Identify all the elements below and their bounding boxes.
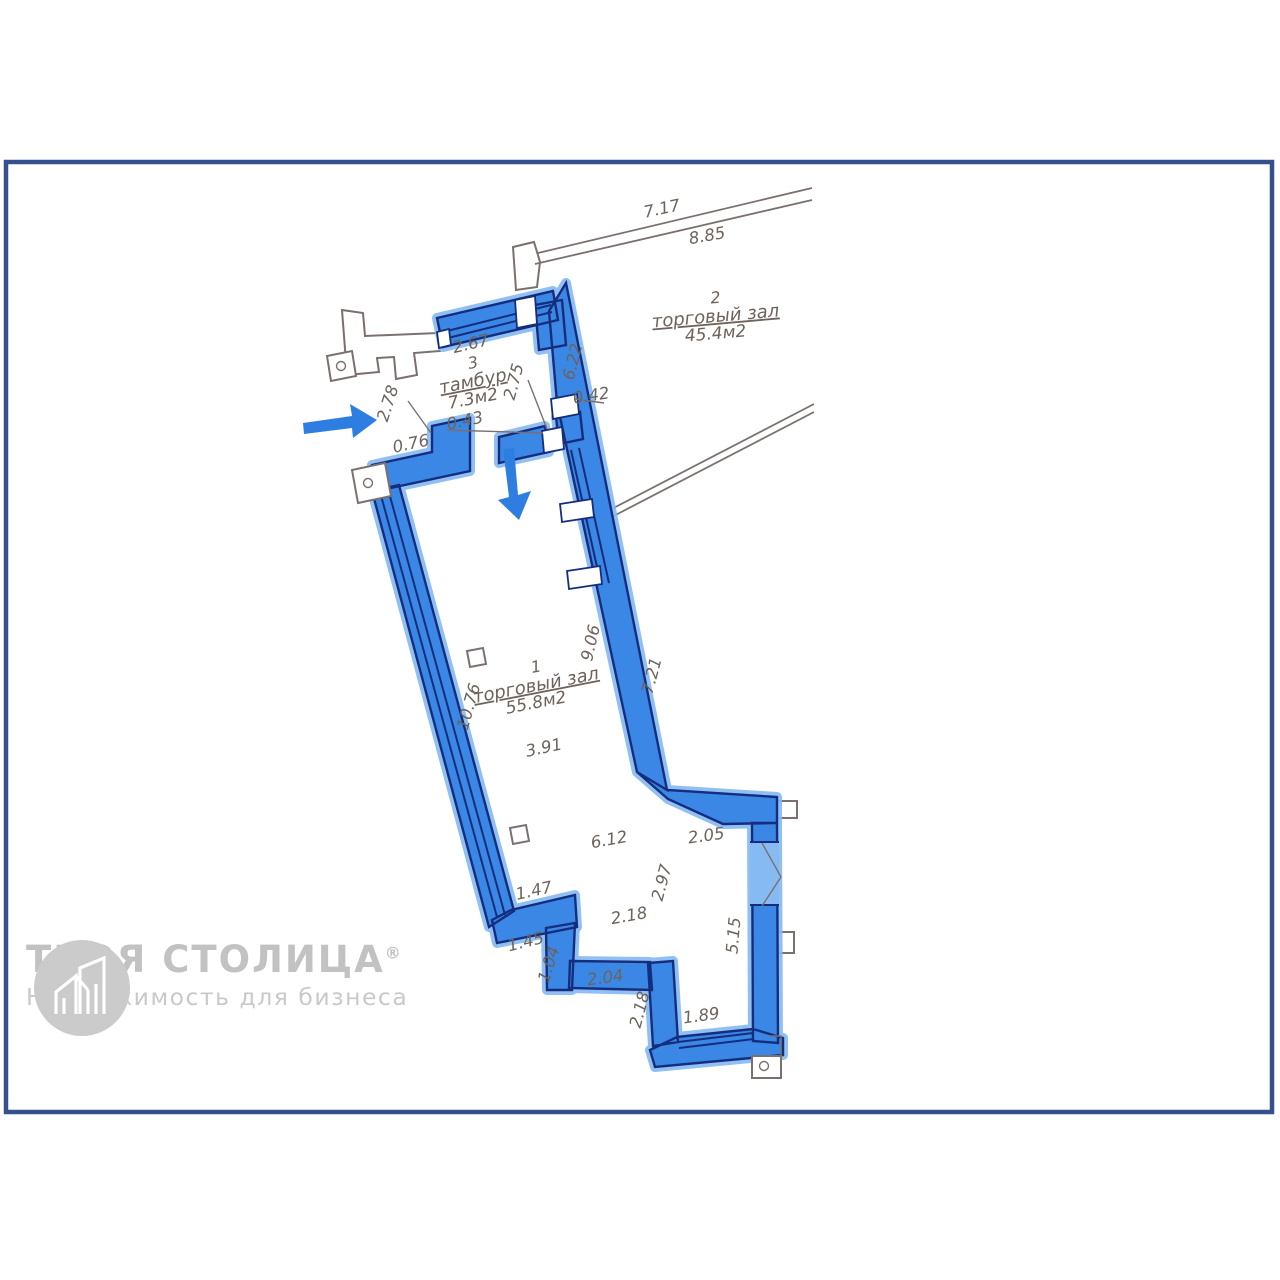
column-with-circle-icon bbox=[352, 463, 391, 503]
wall-end-notch bbox=[437, 329, 451, 348]
watermark: ТВОЯ СТОЛИЦА® Недвижимость для бизнеса bbox=[26, 936, 386, 1011]
glazing-mullion bbox=[567, 566, 602, 589]
glazing-mullion bbox=[560, 499, 594, 522]
plan-label: 5.15 bbox=[722, 916, 744, 954]
floorplan-drawing: 7.178.852.676.222.752.780.420.430.7610.7… bbox=[0, 0, 1280, 1280]
column-icon bbox=[467, 648, 486, 667]
floorplan-page: 7.178.852.676.222.752.780.420.430.7610.7… bbox=[0, 0, 1280, 1280]
plan-label: 2 bbox=[710, 288, 722, 308]
door-jamb-stub bbox=[542, 427, 564, 453]
registered-mark: ® bbox=[385, 944, 403, 963]
corner-wall-outline bbox=[513, 242, 540, 290]
column-with-circle-icon bbox=[752, 1056, 781, 1078]
column-icon bbox=[510, 825, 529, 844]
watermark-logo-icon bbox=[26, 936, 136, 1040]
column-with-circle-icon bbox=[327, 351, 356, 381]
door-opening-right-wall bbox=[750, 841, 779, 906]
corner-notch bbox=[515, 296, 537, 328]
